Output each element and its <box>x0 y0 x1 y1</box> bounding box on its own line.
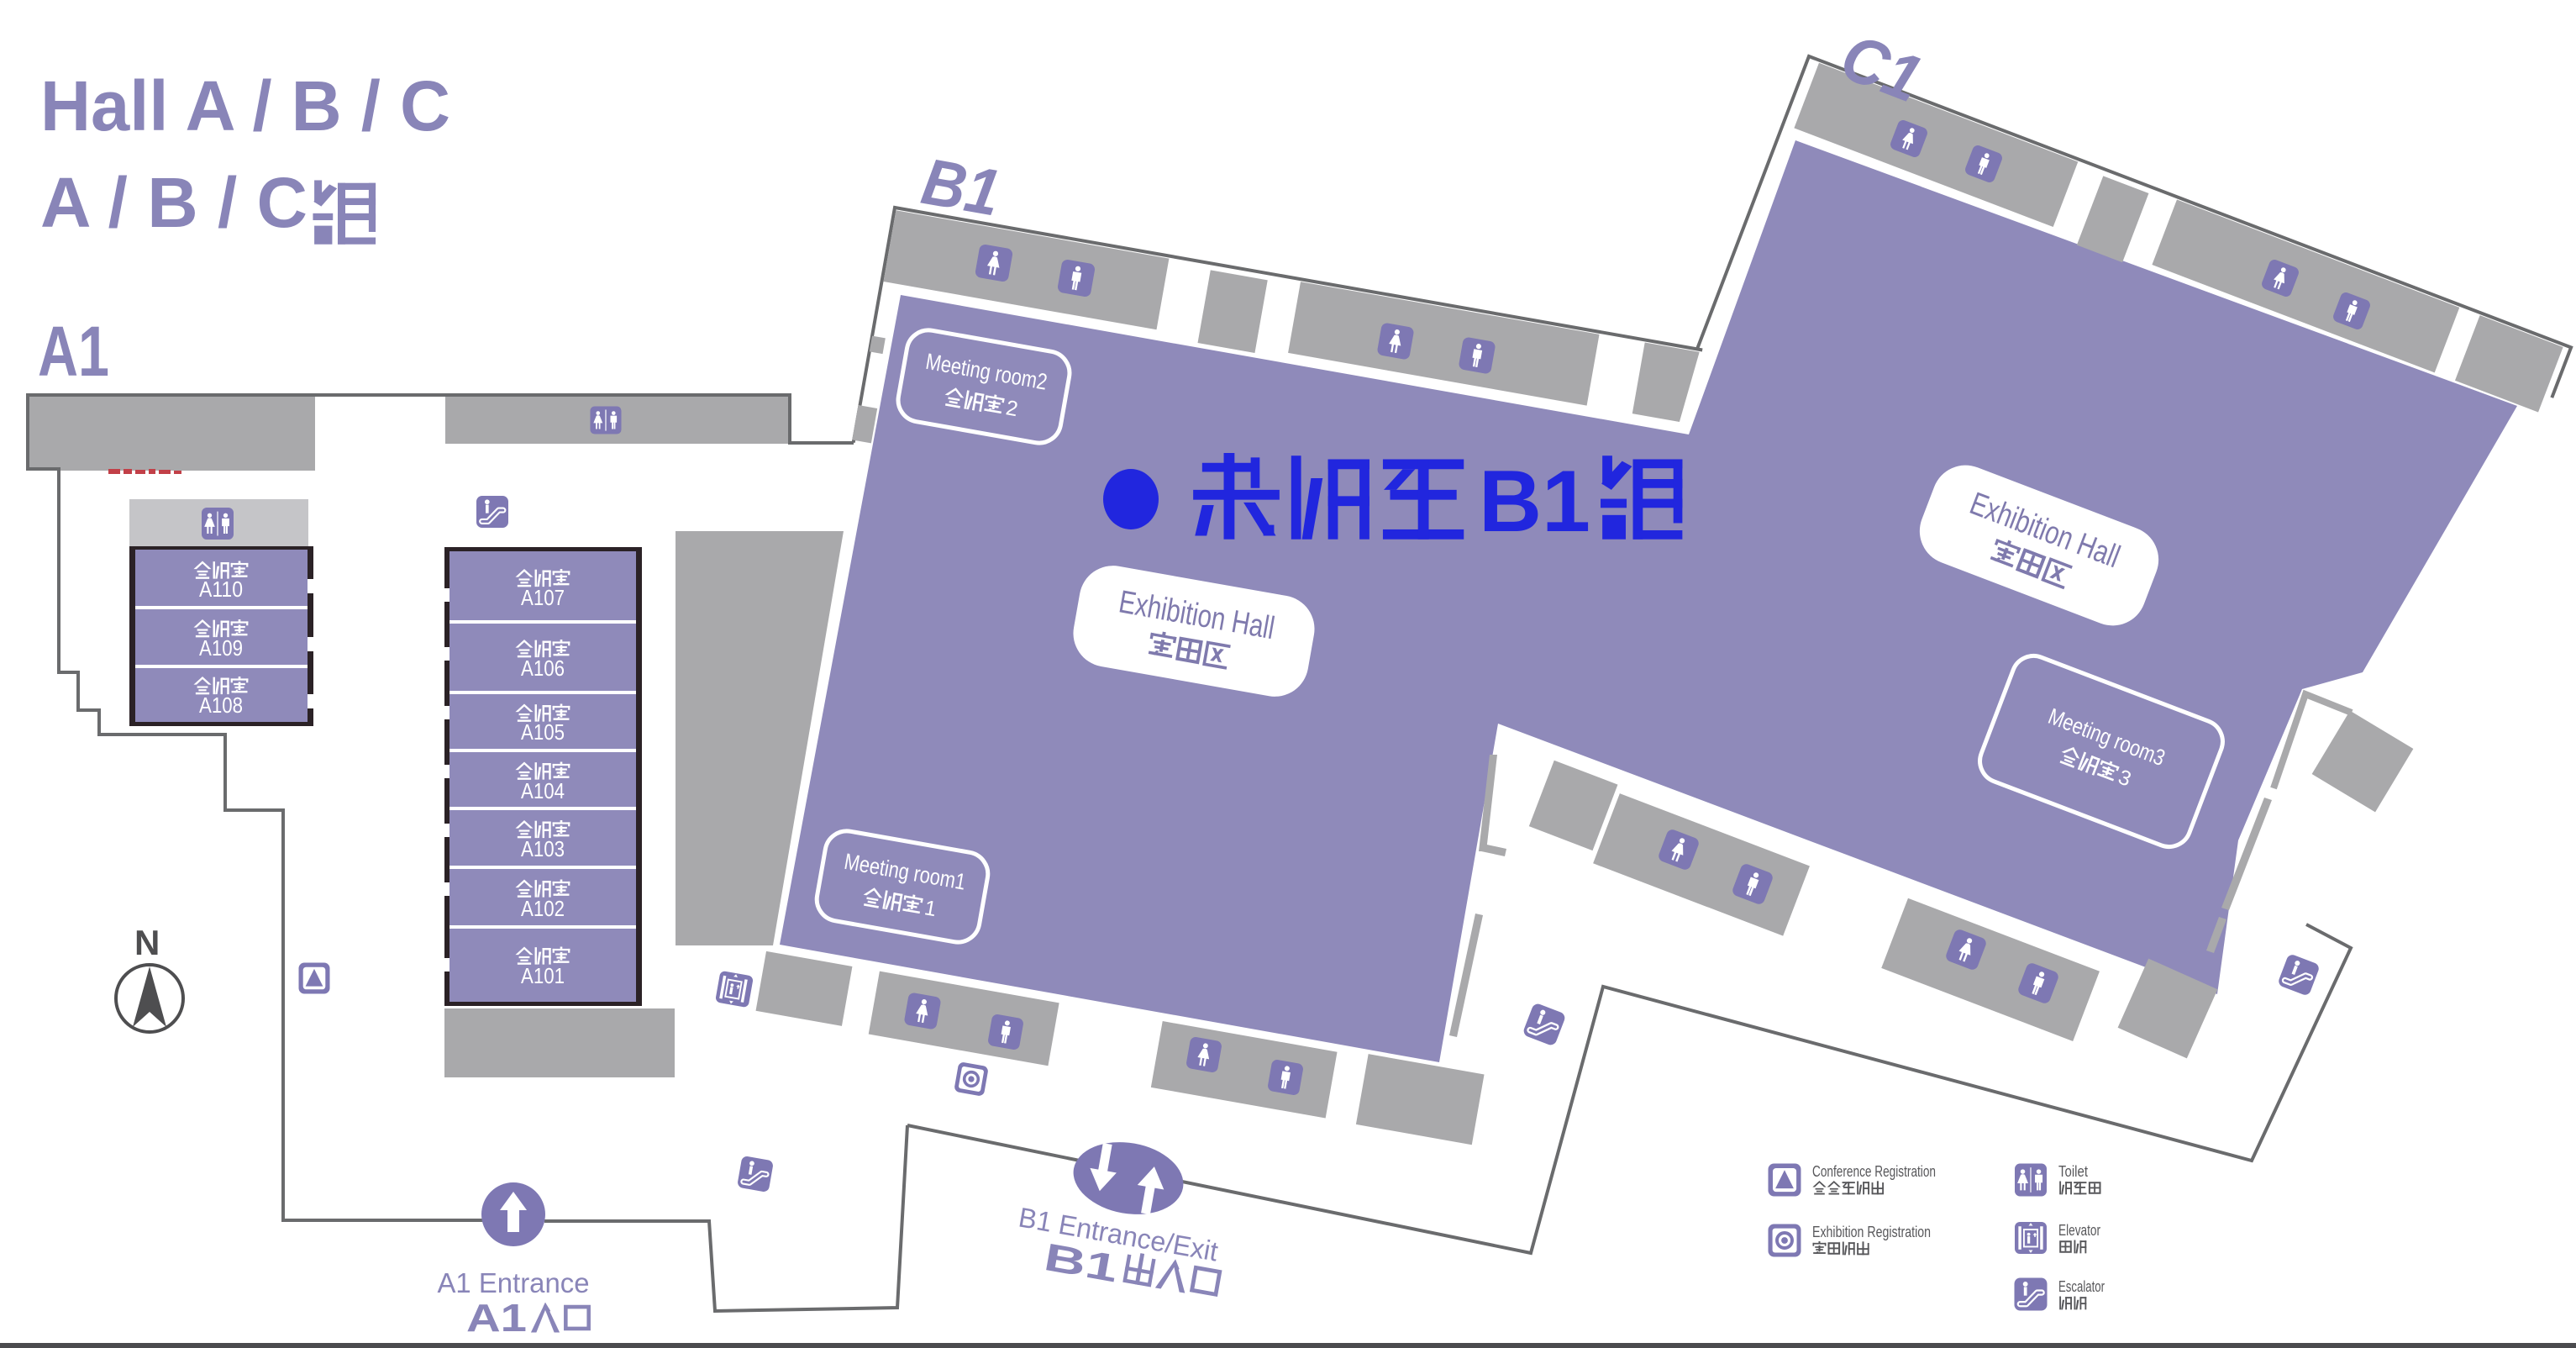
svg-text:Exhibition Registration: Exhibition Registration <box>1812 1224 1931 1240</box>
svg-text:A107: A107 <box>521 585 565 610</box>
svg-text:Toilet: Toilet <box>2058 1163 2088 1180</box>
svg-text:Elevator: Elevator <box>2058 1222 2100 1239</box>
svg-text:Hall A / B / C: Hall A / B / C <box>40 66 450 145</box>
svg-text:A108: A108 <box>199 692 243 718</box>
svg-text:A1: A1 <box>38 312 109 391</box>
svg-text:B1: B1 <box>917 144 1006 230</box>
svg-text:B1: B1 <box>1479 453 1590 550</box>
svg-text:A105: A105 <box>521 719 565 745</box>
svg-text:A102: A102 <box>521 896 565 921</box>
svg-text:Conference Registration: Conference Registration <box>1812 1163 1936 1180</box>
svg-text:A101: A101 <box>521 963 565 988</box>
svg-text:N: N <box>134 923 160 962</box>
svg-text:A / B / C: A / B / C <box>40 163 308 242</box>
svg-text:A106: A106 <box>521 656 565 681</box>
svg-text:A110: A110 <box>199 577 243 602</box>
svg-text:A104: A104 <box>521 778 565 803</box>
svg-text:A109: A109 <box>199 635 243 661</box>
svg-text:A1 Entrance: A1 Entrance <box>438 1267 590 1298</box>
svg-text:A103: A103 <box>521 836 565 861</box>
svg-text:A1: A1 <box>466 1296 527 1340</box>
svg-text:Escalator: Escalator <box>2058 1278 2105 1295</box>
